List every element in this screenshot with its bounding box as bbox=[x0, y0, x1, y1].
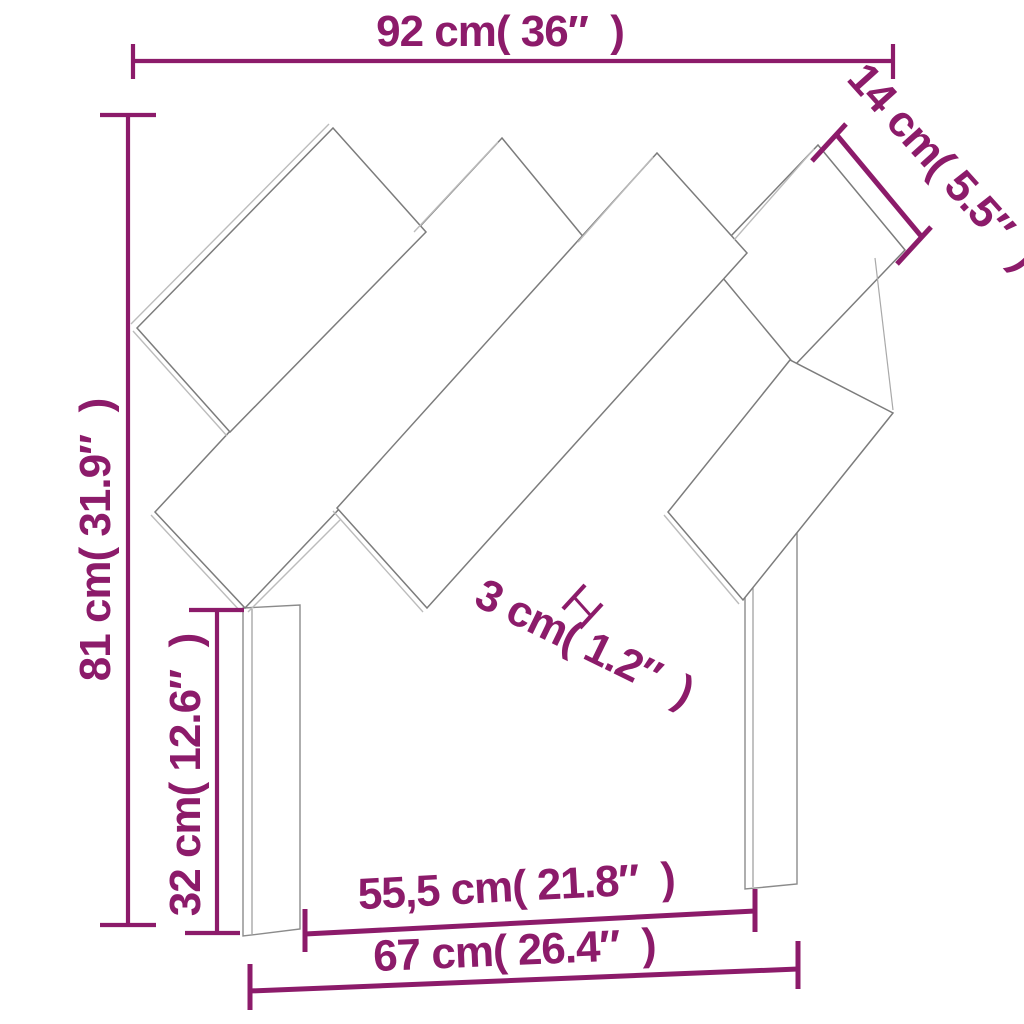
dim-inner-span-label: 55,5 cm( 21.8″ ) bbox=[357, 854, 676, 920]
diagram-canvas: 92 cm( 36″ ) 14 cm( 5.5″ ) 81 cm( 31.9″ … bbox=[0, 0, 1024, 1024]
dim-overall-height: 81 cm( 31.9″ ) bbox=[71, 115, 156, 925]
dim-leg-height-label: 32 cm( 12.6″ ) bbox=[161, 634, 210, 916]
headboard-drawing bbox=[131, 124, 905, 936]
right-side-edge bbox=[875, 258, 893, 410]
dim-leg-height: 32 cm( 12.6″ ) bbox=[161, 610, 244, 933]
dim-slat-thickness-label: 3 cm( 1.2″ ) bbox=[468, 569, 701, 716]
left-leg bbox=[243, 605, 300, 936]
dim-slat-thickness: 3 cm( 1.2″ ) bbox=[468, 569, 701, 716]
dim-overall-width: 92 cm( 36″ ) bbox=[133, 7, 893, 79]
dim-overall-width-label: 92 cm( 36″ ) bbox=[376, 7, 624, 56]
headboard-dimension-diagram: 92 cm( 36″ ) 14 cm( 5.5″ ) 81 cm( 31.9″ … bbox=[0, 0, 1024, 1024]
dim-overall-height-label: 81 cm( 31.9″ ) bbox=[71, 399, 120, 681]
